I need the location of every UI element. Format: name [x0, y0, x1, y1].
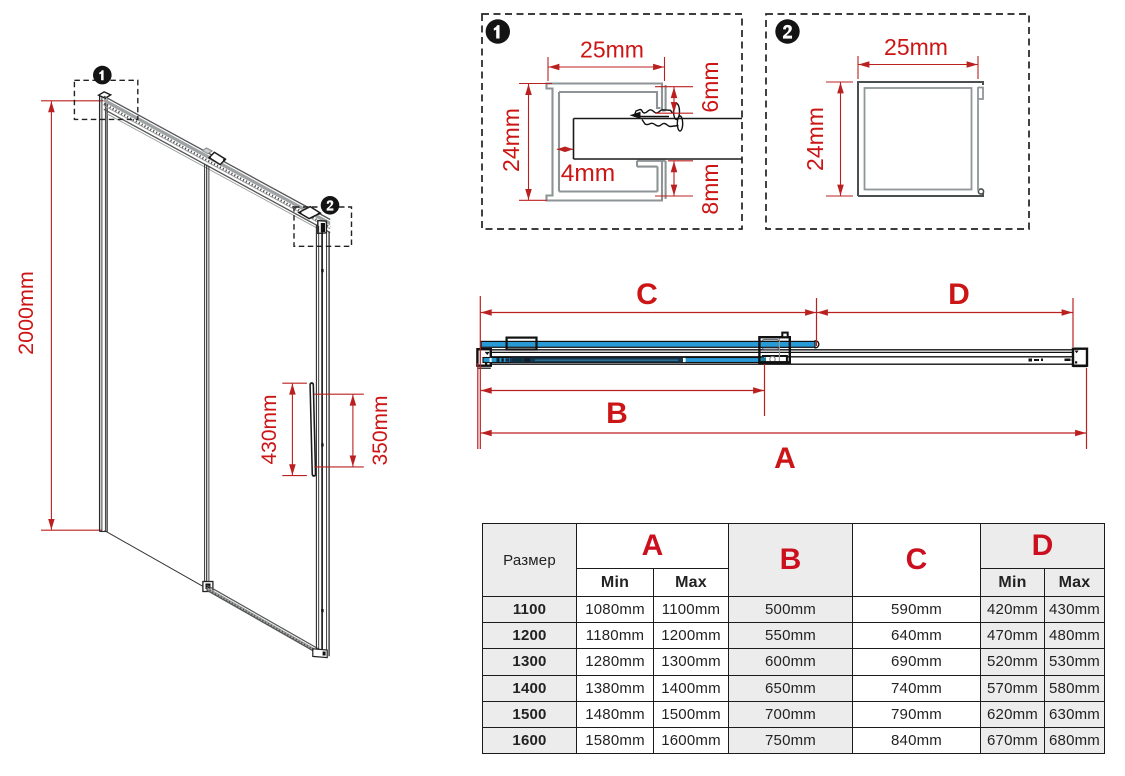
svg-text:8mm: 8mm	[697, 163, 723, 214]
svg-text:24mm: 24mm	[802, 107, 828, 171]
svg-text:B: B	[606, 397, 628, 430]
svg-text:D: D	[948, 278, 970, 311]
svg-text:2000mm: 2000mm	[14, 271, 38, 355]
svg-text:430mm: 430mm	[258, 394, 281, 464]
svg-text:350mm: 350mm	[369, 395, 392, 465]
svg-text:C: C	[636, 278, 658, 311]
svg-text:25mm: 25mm	[884, 34, 948, 60]
svg-text:4mm: 4mm	[561, 160, 615, 187]
svg-text:6mm: 6mm	[697, 61, 723, 112]
svg-text:A: A	[774, 442, 796, 475]
svg-text:25mm: 25mm	[580, 37, 644, 63]
svg-text:24mm: 24mm	[498, 108, 524, 172]
